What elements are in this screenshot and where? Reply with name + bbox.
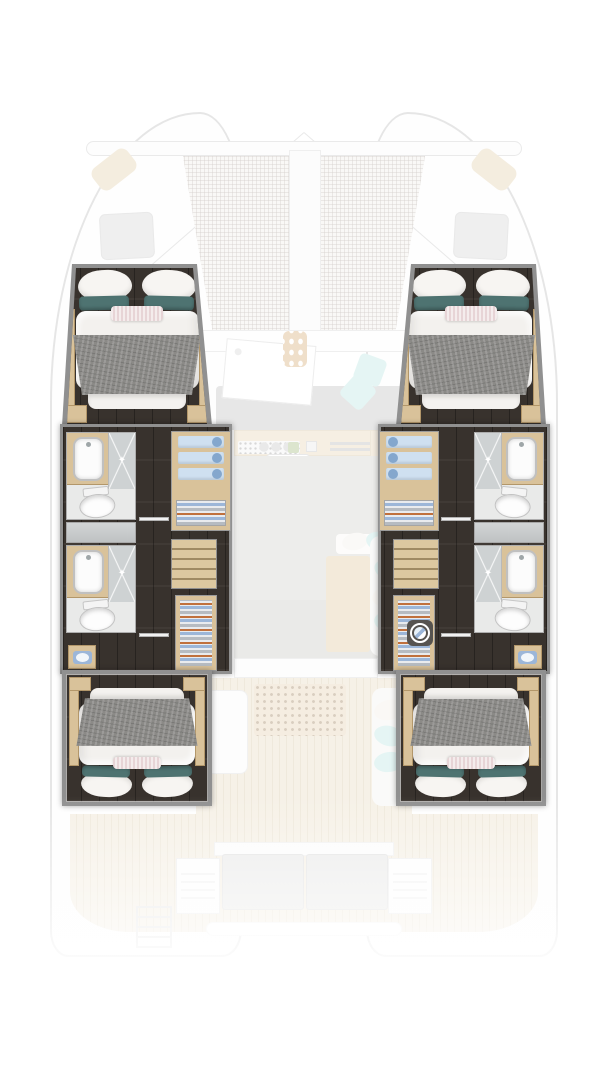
aft-port-cabin (62, 670, 212, 806)
bed-runner (410, 698, 531, 746)
bed-runner (407, 335, 535, 395)
tap-icon (86, 555, 91, 560)
folded-towels (178, 468, 224, 480)
double-bed (76, 267, 199, 418)
storage-cabinet (66, 522, 136, 543)
folded-towels (386, 436, 432, 448)
tap-icon (520, 442, 525, 447)
towel-shelves (379, 431, 439, 531)
double-bed (413, 680, 529, 799)
washbasin (73, 550, 104, 594)
tap-icon (520, 555, 525, 560)
door-opening (441, 633, 471, 637)
shower: ✦ (108, 433, 135, 489)
small-basin (518, 651, 537, 664)
bathroom: ✦ (66, 432, 136, 520)
bathroom: ✦ (474, 432, 544, 520)
shower: ✦ (475, 546, 502, 602)
bathroom: ✦ (66, 545, 136, 633)
fade-to-white-overlay (0, 796, 608, 1080)
forward-port-cabin (62, 264, 212, 426)
forward-starboard-cabin (396, 264, 546, 426)
small-basin (73, 651, 92, 664)
bed-foot-cushion (422, 394, 520, 409)
door-opening (139, 517, 169, 521)
bed-foot-cushion (90, 688, 183, 700)
washbasin (506, 437, 537, 481)
shower-light-icon: ✦ (118, 456, 126, 466)
towel-shelves (171, 431, 231, 531)
folded-towels (178, 452, 224, 464)
bedside-shelf (69, 678, 79, 766)
bedside-shelf (195, 678, 205, 766)
washer-laundry (414, 627, 426, 639)
bed-foot-cushion (424, 688, 517, 700)
companionway-stairs (393, 539, 439, 589)
hull-passage-interior: ✦ ✦ (63, 427, 229, 671)
folded-towels (386, 452, 432, 464)
storage-cabinet (474, 522, 544, 543)
starboard-hull-midsection: ✦ ✦ (378, 424, 550, 674)
bed-runner (76, 698, 197, 746)
washer-drum (410, 623, 430, 643)
hanging-rail (384, 500, 434, 526)
port-hull-midsection: ✦ ✦ (60, 424, 232, 674)
catamaran-floorplan: ✦ ✦ ✦ (0, 0, 608, 1080)
double-bed (79, 680, 195, 799)
wardrobe (175, 595, 217, 671)
washbasin (506, 550, 537, 594)
cabin-interior (400, 674, 542, 802)
cabin-interior (396, 264, 546, 426)
bed-foot-cushion (88, 394, 186, 409)
cabin-interior (62, 264, 212, 426)
companionway-stairs (171, 539, 217, 589)
bed-runner (73, 335, 201, 395)
shower: ✦ (475, 433, 502, 489)
toilet (491, 598, 532, 634)
vanity-unit (68, 645, 96, 669)
bedside-shelf (529, 678, 539, 766)
toilet (77, 598, 118, 634)
lumbar-pillow (445, 306, 497, 321)
hanging-rail (176, 500, 226, 526)
toilet (77, 485, 118, 521)
bathroom: ✦ (474, 545, 544, 633)
folded-towels (178, 436, 224, 448)
door-opening (139, 633, 169, 637)
shower-light-icon: ✦ (484, 569, 492, 579)
washing-machine-icon (407, 620, 433, 646)
washbasin (73, 437, 104, 481)
shower: ✦ (108, 546, 135, 602)
lumbar-pillow (447, 757, 496, 769)
double-bed (410, 267, 533, 418)
cabin-interior (66, 674, 208, 802)
shower-light-icon: ✦ (118, 569, 126, 579)
folded-towels (386, 468, 432, 480)
lumbar-pillow (111, 306, 163, 321)
shower-light-icon: ✦ (484, 456, 492, 466)
tap-icon (86, 442, 91, 447)
lumbar-pillow (113, 757, 162, 769)
aft-starboard-cabin (396, 670, 546, 806)
toilet (491, 485, 532, 521)
door-opening (441, 517, 471, 521)
vanity-unit (514, 645, 542, 669)
bedside-shelf (403, 678, 413, 766)
hull-passage-interior: ✦ ✦ (381, 427, 547, 671)
